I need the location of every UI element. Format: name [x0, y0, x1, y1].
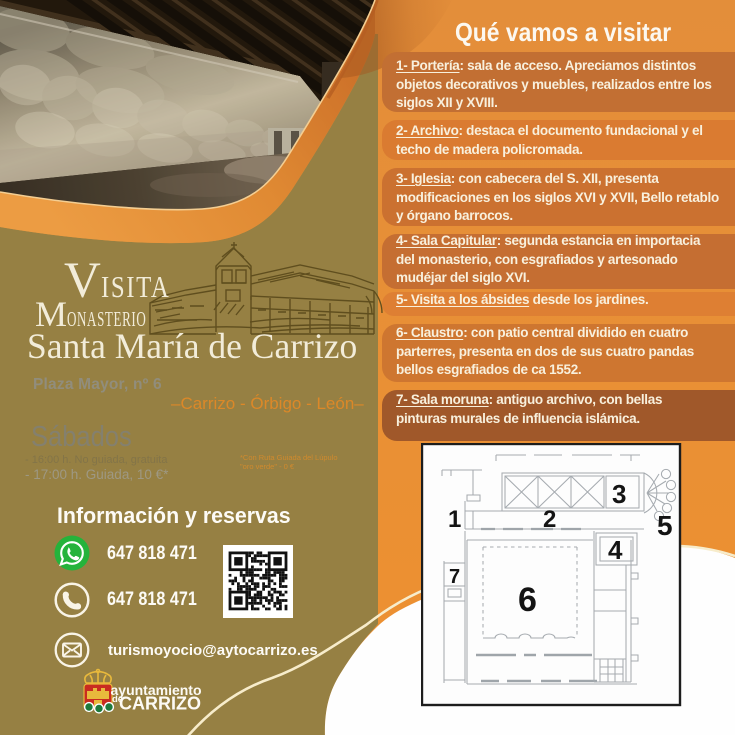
svg-text:5: 5: [657, 510, 673, 541]
svg-text:1: 1: [448, 506, 461, 533]
svg-text:CARRIZO: CARRIZO: [119, 694, 201, 714]
svg-text:2: 2: [543, 506, 556, 533]
svg-text:7: 7: [449, 566, 460, 588]
svg-text:4: 4: [608, 535, 623, 565]
svg-text:3: 3: [612, 479, 626, 509]
svg-text:6: 6: [518, 581, 537, 619]
